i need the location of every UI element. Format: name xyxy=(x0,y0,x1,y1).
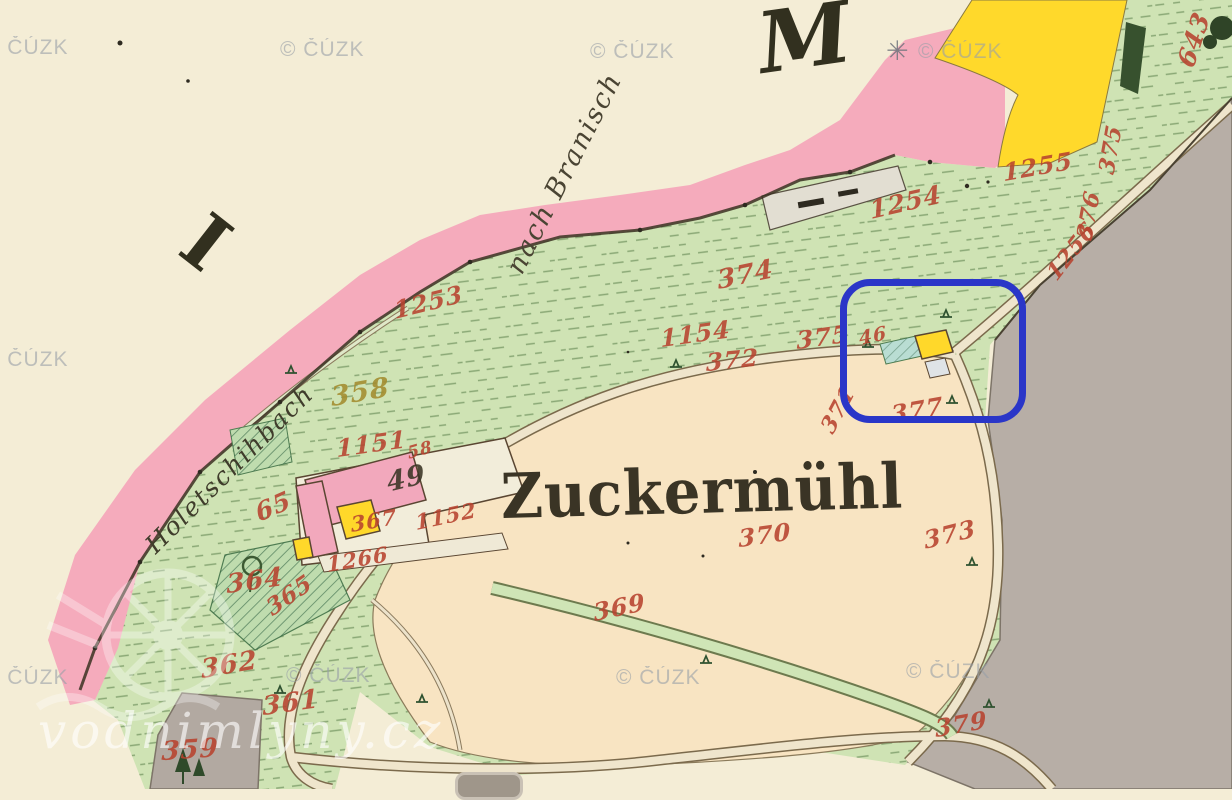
historic-cadastre-map-view: { "map": { "place_label": "Zuckermühl", … xyxy=(0,0,1232,789)
cadastre-map-canvas xyxy=(0,0,1232,789)
highlight-box xyxy=(840,279,1026,423)
map-control-button[interactable] xyxy=(455,772,523,800)
building-yellow-small xyxy=(293,537,313,560)
star-mark: ✳ xyxy=(886,36,909,67)
